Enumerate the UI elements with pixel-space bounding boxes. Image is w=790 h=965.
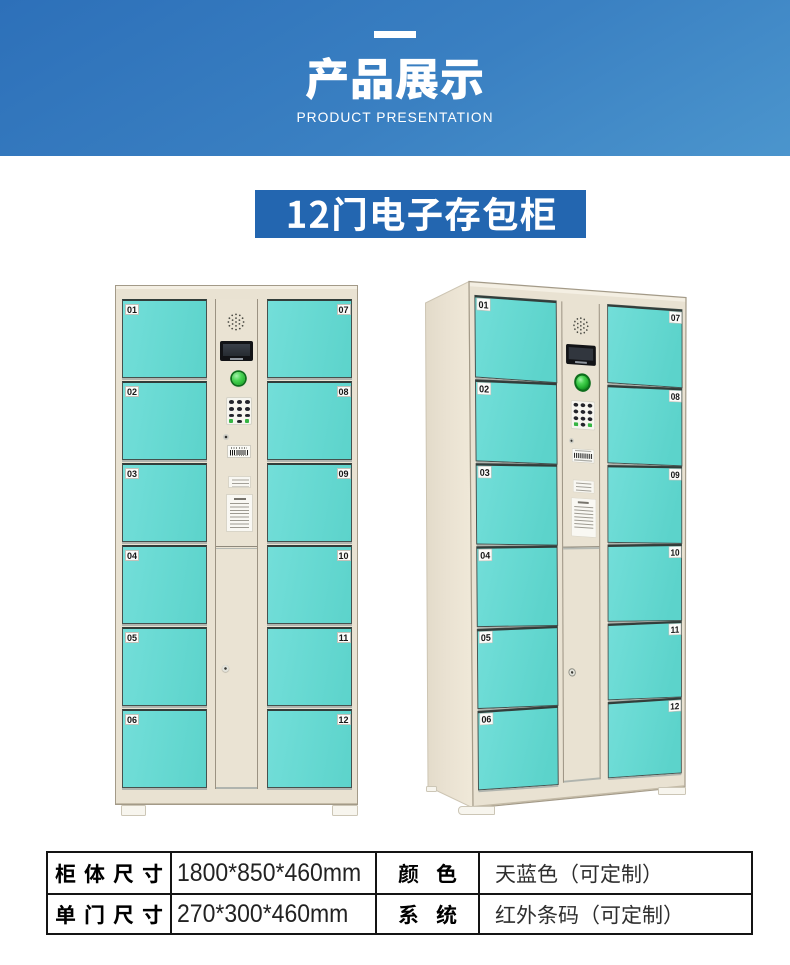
- svg-text:04: 04: [480, 550, 491, 560]
- svg-text:02: 02: [479, 383, 489, 395]
- svg-text:11: 11: [671, 624, 680, 635]
- svg-text:06: 06: [481, 714, 491, 725]
- svg-text:05: 05: [481, 632, 491, 643]
- svg-text:07: 07: [671, 312, 680, 323]
- svg-text:12: 12: [670, 701, 679, 712]
- svg-text:10: 10: [670, 547, 679, 558]
- svg-text:08: 08: [671, 391, 680, 402]
- svg-text:09: 09: [671, 469, 680, 480]
- svg-text:01: 01: [478, 300, 488, 312]
- svg-text:03: 03: [480, 467, 490, 477]
